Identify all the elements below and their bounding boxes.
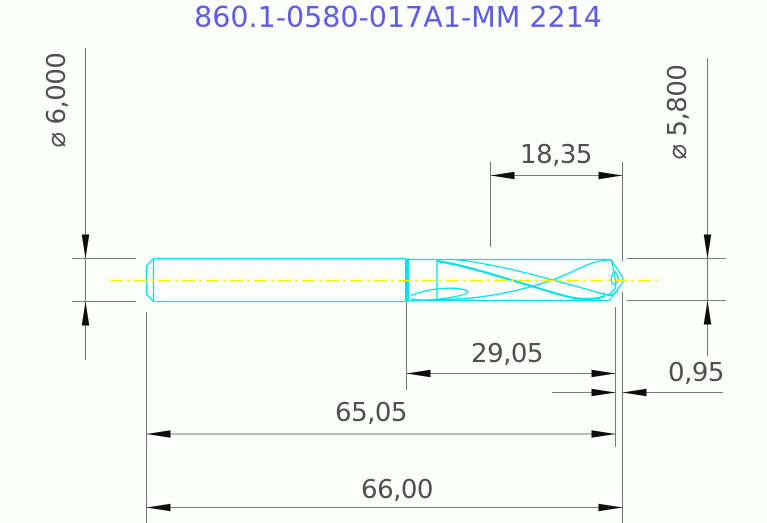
technical-drawing-page: 860.1-0580-017A1-MM 2214 ⌀ 6,000 ⌀ 5,800… [0,0,767,523]
dim-label-length-to-point: 65,05 [335,398,407,428]
arrow-shank-dia-top [82,235,90,259]
arrow-pointlen-left [592,389,616,397]
dim-label-overall-length: 66,00 [361,475,433,505]
dimension-lines [72,48,726,523]
drill-helix-lower [455,260,607,296]
dimension-labels: ⌀ 6,000 ⌀ 5,800 18,35 29,05 0,95 65,05 6… [42,53,724,505]
arrow-point-dia-bottom [704,301,712,325]
arrow-point-dia-top [704,235,712,259]
dim-shank-dia-line [72,48,136,360]
drawing-title: 860.1-0580-017A1-MM 2214 [194,1,602,34]
arrow-shank-dia-bottom [82,302,90,326]
arrow-body-right [592,370,616,378]
arrow-65-left [147,430,171,438]
dimension-arrowheads [82,172,712,512]
arrow-body-left [407,370,431,378]
arrow-66-left [147,504,171,512]
arrow-65-right [592,430,616,438]
dim-label-shank-diameter: ⌀ 6,000 [42,53,72,148]
arrow-flute-left [491,172,515,180]
drill-flute-runout [411,288,468,300]
dim-label-point-diameter: ⌀ 5,800 [663,65,693,160]
dim-label-flute-length: 18,35 [520,140,592,170]
drawing-canvas: 860.1-0580-017A1-MM 2214 ⌀ 6,000 ⌀ 5,800… [0,0,767,523]
arrow-pointlen-right [623,389,647,397]
dim-label-point-length: 0,95 [668,358,724,388]
dim-label-body-length: 29,05 [471,339,543,369]
arrow-66-right [599,504,623,512]
arrow-flute-right [599,172,623,180]
